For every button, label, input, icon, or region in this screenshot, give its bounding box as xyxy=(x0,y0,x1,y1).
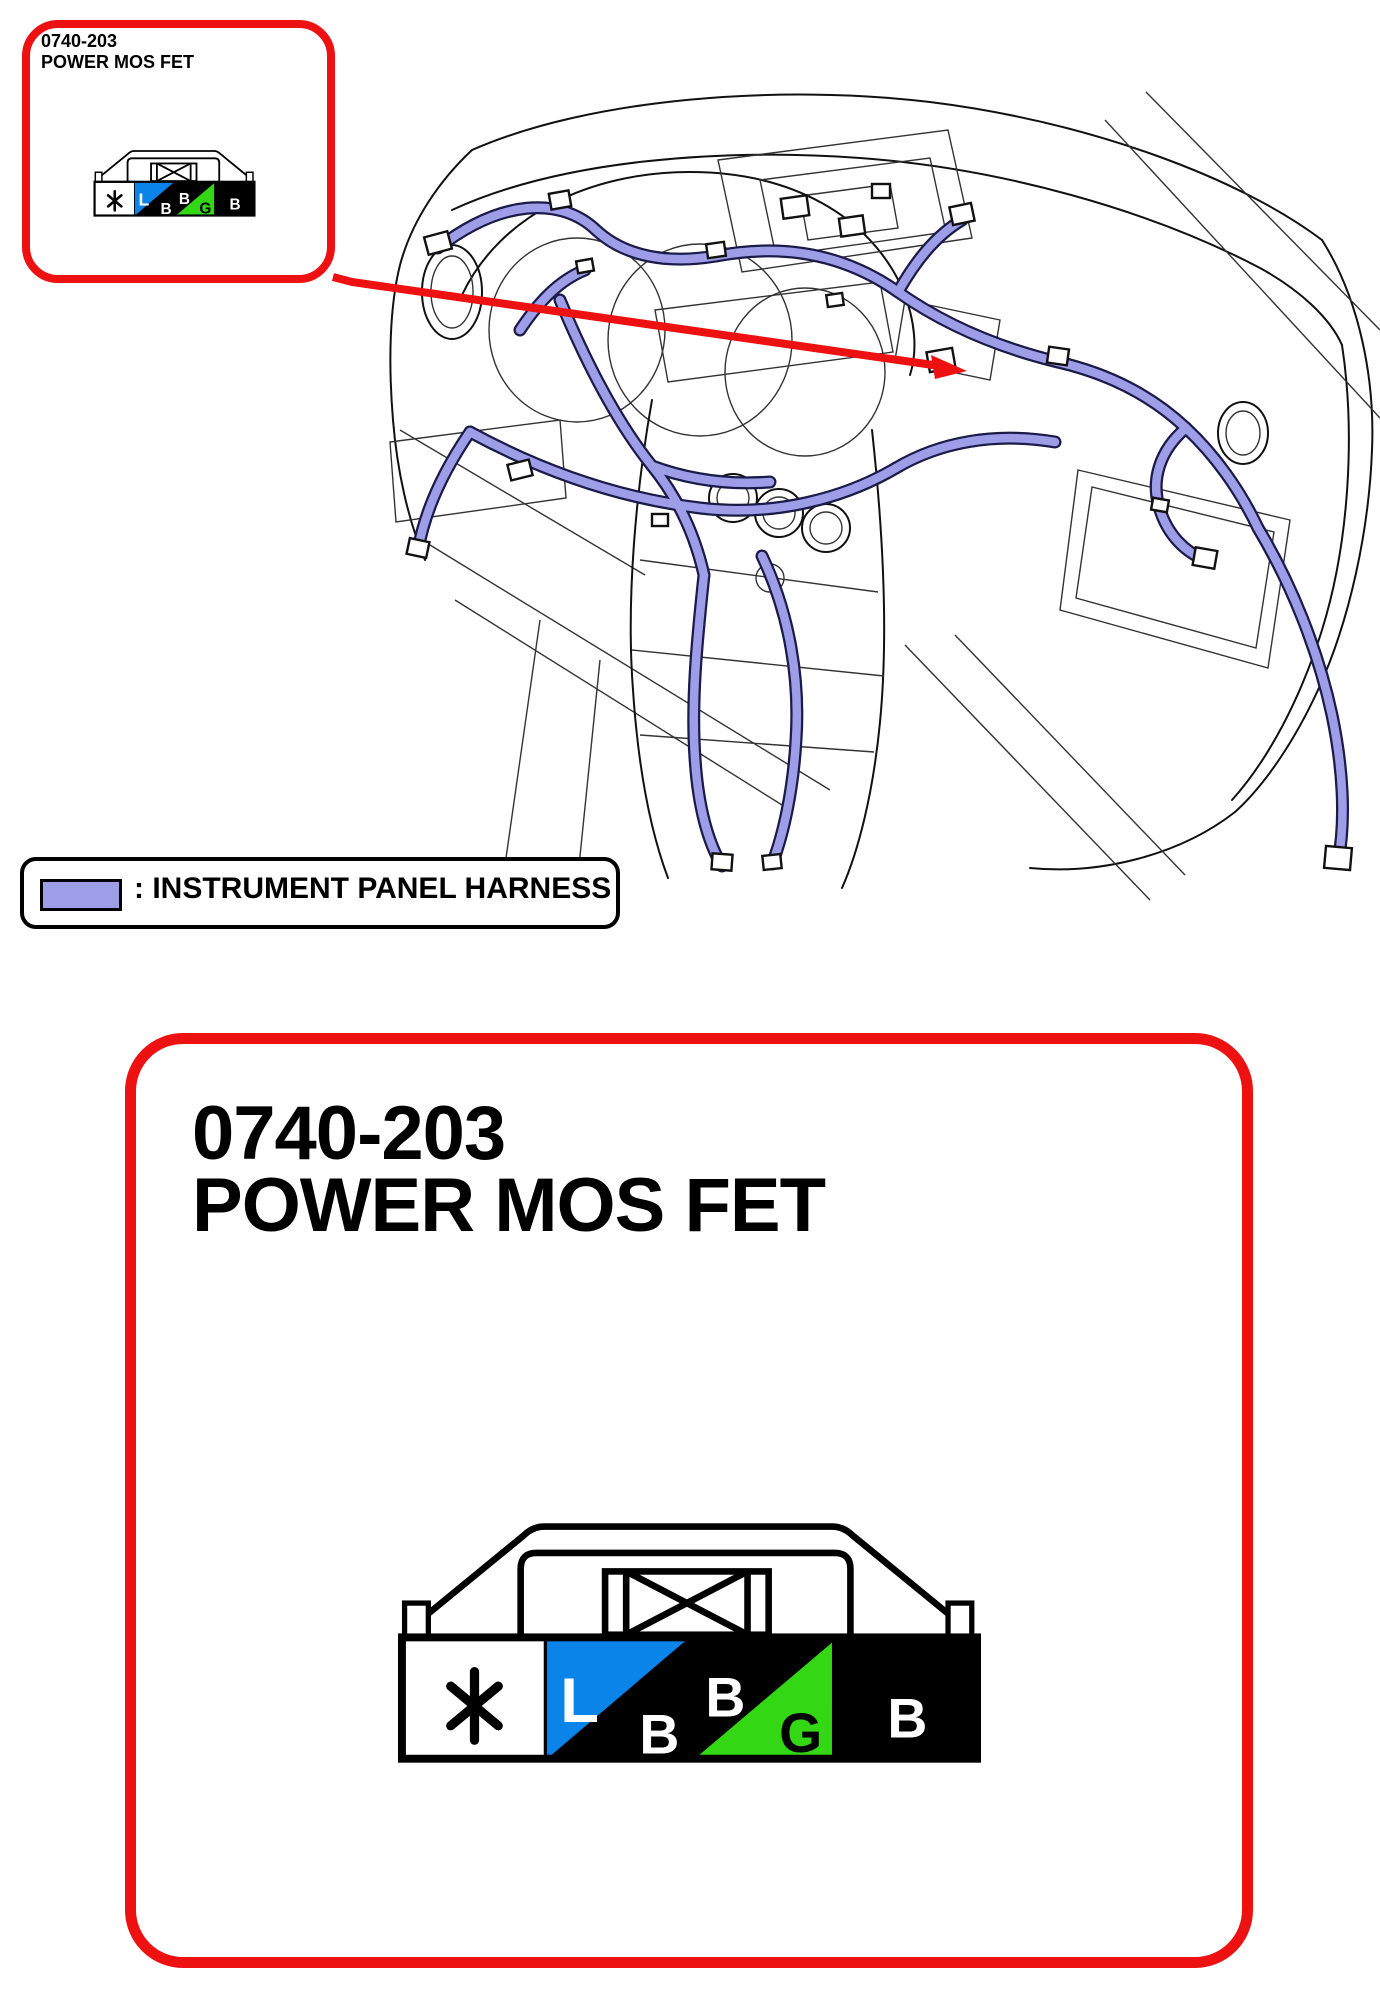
connector-box xyxy=(781,195,810,218)
connector-housing xyxy=(95,151,253,182)
connector-box xyxy=(839,215,865,236)
pin-label: L xyxy=(560,1666,599,1736)
pin-label: B xyxy=(887,1688,927,1750)
detail-code: 0740-203 xyxy=(192,1096,505,1172)
connector-box xyxy=(652,514,668,526)
connector-box xyxy=(1324,846,1352,870)
connector-box xyxy=(1193,547,1218,569)
callout-name: POWER MOS FET xyxy=(41,52,194,73)
pin-label: B xyxy=(639,1703,679,1764)
connector-box xyxy=(424,231,452,255)
target-connector-box xyxy=(926,348,955,372)
connector-box xyxy=(711,853,732,870)
callout-code: 0740-203 xyxy=(41,31,194,52)
connector-box xyxy=(407,538,430,558)
connector-box xyxy=(549,190,571,209)
connector-box xyxy=(762,854,781,870)
dashboard-illustration xyxy=(300,58,1380,903)
legend-label: : INSTRUMENT PANEL HARNESS xyxy=(134,872,611,906)
pin-label: B xyxy=(179,191,190,208)
connector-box xyxy=(1151,498,1169,513)
detail-name: POWER MOS FET xyxy=(192,1168,825,1244)
legend-swatch xyxy=(40,879,122,911)
pin-label: G xyxy=(779,1702,822,1764)
connector-housing xyxy=(405,1527,972,1638)
connector-icon-small: L B B G B xyxy=(90,140,259,217)
connector-box xyxy=(706,242,726,258)
connector-box xyxy=(1047,347,1069,366)
pin-label: G xyxy=(199,201,211,217)
pin-label: B xyxy=(230,197,241,214)
connector-pin-band: L B B G B xyxy=(95,182,255,217)
pin-label: B xyxy=(161,201,172,217)
connector-box xyxy=(576,259,594,274)
pin-label: L xyxy=(139,189,150,209)
connector-box xyxy=(826,293,844,307)
manual-page: 0740-203 POWER MOS FET L xyxy=(0,0,1380,1998)
pin-label: B xyxy=(705,1667,745,1729)
connector-box xyxy=(949,203,974,225)
callout-title: 0740-203 POWER MOS FET xyxy=(41,31,194,73)
connector-diagram-large: L B B G B xyxy=(386,1487,993,1764)
connector-box xyxy=(507,460,532,481)
connector-pin-band: L B B G B xyxy=(402,1637,977,1764)
glove-box xyxy=(1060,470,1290,668)
hvac-knob xyxy=(802,504,850,552)
connector-box xyxy=(872,184,890,198)
